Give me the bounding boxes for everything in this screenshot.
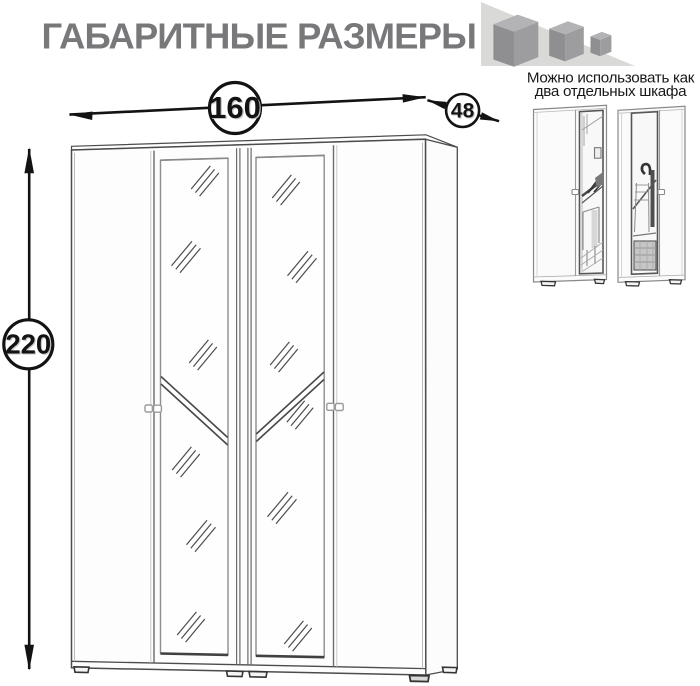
svg-text:48: 48 — [451, 100, 475, 123]
svg-text:160: 160 — [209, 90, 261, 125]
svg-text:220: 220 — [5, 329, 51, 360]
svg-text:два отдельных шкафа: два отдельных шкафа — [535, 83, 687, 100]
svg-text:ГАБАРИТНЫЕ РАЗМЕРЫ: ГАБАРИТНЫЕ РАЗМЕРЫ — [42, 16, 476, 57]
